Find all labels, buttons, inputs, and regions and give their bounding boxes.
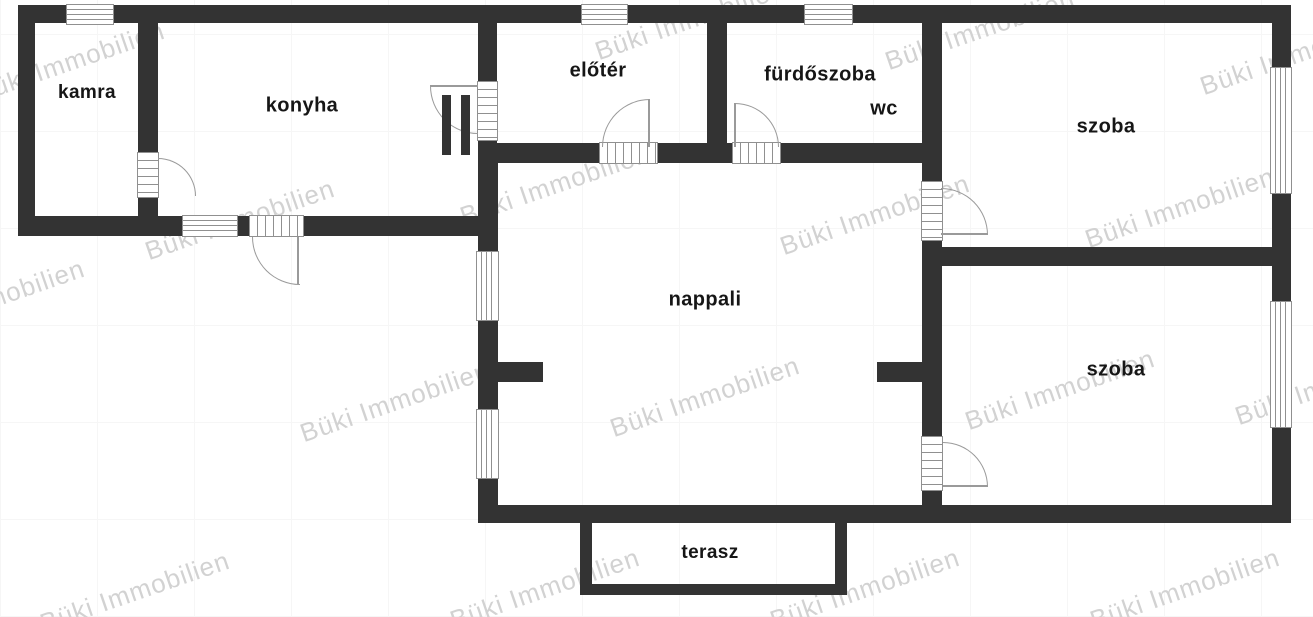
door-leaf-room2	[943, 485, 988, 487]
watermark-text: Büki Immobilien	[0, 253, 89, 347]
room-label-szoba2: szoba	[1087, 359, 1146, 382]
door-room1	[921, 181, 943, 241]
watermark-text: Büki Immobilien	[296, 355, 494, 449]
watermark-text: Büki Immobilien	[766, 542, 964, 617]
wall-rooms-divider	[922, 247, 1291, 266]
room-label-terasz: terasz	[681, 542, 738, 564]
watermark-text: Büki Immobilien	[606, 350, 804, 444]
chimney-bar-1	[442, 95, 451, 155]
door-leaf-kitchen-hall	[430, 85, 478, 87]
watermark-text: Büki Immobilien	[36, 545, 234, 617]
door-pantry	[137, 152, 159, 198]
door-arc-pantry	[158, 158, 196, 196]
wall-pantry-kitchen-a	[138, 23, 158, 153]
wall-terrace-bottom	[580, 584, 847, 595]
wall-kitchen-hall-a	[478, 23, 497, 82]
chimney-bar-2	[461, 95, 470, 155]
wall-livingroom-top-b	[657, 143, 733, 163]
wall-rooms-vert-a	[922, 23, 942, 182]
floor-plan: Büki ImmobilienBüki ImmobilienBüki Immob…	[0, 0, 1313, 617]
door-arc-room1	[941, 188, 988, 235]
wall-stub-right	[877, 362, 922, 382]
wall-stub-left	[497, 362, 543, 382]
door-leaf-kitchen-exit	[297, 237, 299, 284]
door-kitchen-hall	[477, 81, 498, 141]
room-label-furdoszoba: fürdőszoba	[764, 64, 876, 87]
window-bathroom-top	[804, 4, 853, 25]
watermark-text: Büki Immobilien	[1081, 161, 1279, 255]
room-label-szoba1: szoba	[1077, 116, 1136, 139]
room-label-konyha: konyha	[266, 95, 338, 118]
wall-rooms-vert-b	[922, 240, 942, 437]
watermark-text: Büki Immobilien	[446, 542, 644, 617]
wall-rooms-vert-c	[922, 490, 942, 505]
window-room1-right	[1270, 67, 1292, 194]
wall-livingroom-top-c	[780, 143, 922, 163]
door-arc-kitchen-exit	[252, 237, 300, 285]
room-label-eloter: előtér	[570, 60, 627, 83]
wall-outer-bottom	[478, 505, 1291, 523]
wall-outer-top	[18, 5, 1291, 23]
door-leaf-hall-living	[648, 99, 650, 147]
door-arc-room2	[943, 442, 988, 487]
door-arc-bathroom	[735, 103, 779, 147]
room-label-nappali: nappali	[669, 289, 742, 312]
door-leaf-room1	[941, 233, 988, 235]
door-leaf-bathroom	[734, 103, 736, 147]
wall-outer-left	[18, 5, 35, 236]
door-room2	[921, 436, 943, 491]
window-pantry-top	[66, 4, 114, 25]
window-kitchen-bottom	[182, 215, 238, 237]
door-arc-kitchen-hall	[430, 86, 478, 134]
watermark-text: Büki Immobilien	[961, 343, 1159, 437]
wall-hall-bathroom	[707, 23, 727, 143]
window-hall-top	[581, 4, 628, 25]
room-label-kamra: kamra	[58, 82, 116, 104]
door-arc-hall-living	[602, 99, 650, 147]
door-kitchen-exit	[249, 215, 304, 237]
watermark-text: Büki Immobilien	[1086, 542, 1284, 617]
watermark-layer: Büki ImmobilienBüki ImmobilienBüki Immob…	[0, 0, 1313, 617]
room-label-wc: wc	[870, 98, 897, 121]
window-livingroom-2	[476, 409, 499, 479]
window-room2-right	[1270, 301, 1292, 428]
wall-pantry-kitchen-b	[138, 197, 158, 216]
window-livingroom-1	[476, 251, 499, 321]
wall-livingroom-top-a	[478, 143, 600, 163]
